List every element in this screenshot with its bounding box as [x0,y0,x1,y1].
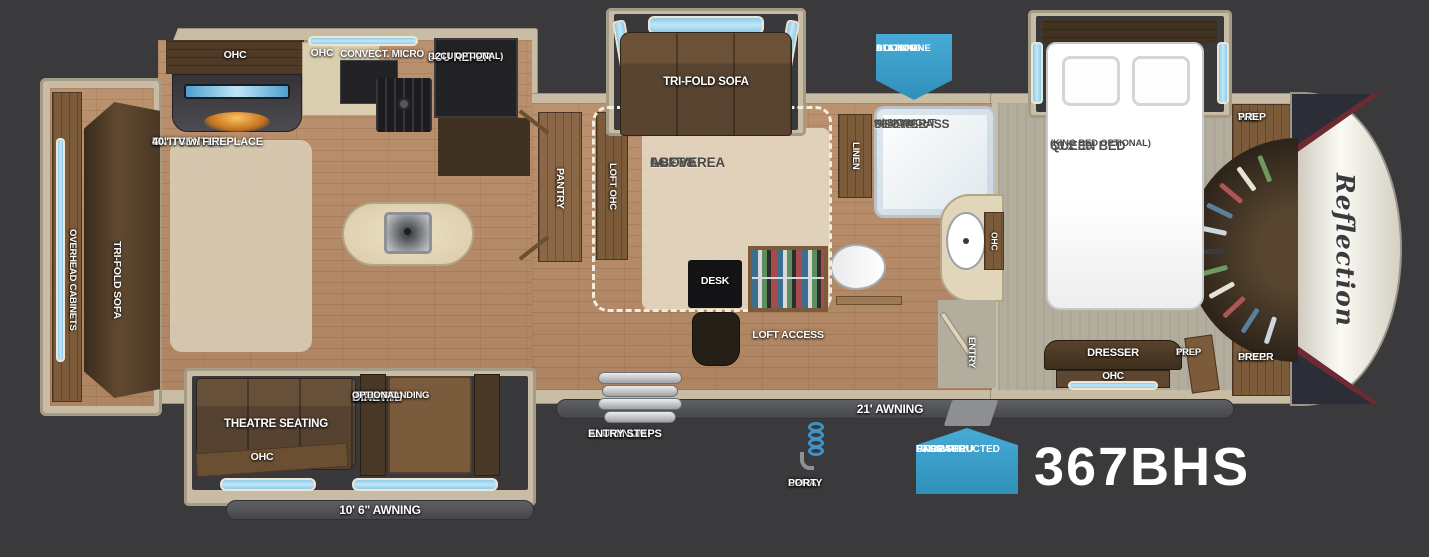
pantry-label: PANTRY [549,130,569,246]
brand-logo: Reflection [1322,158,1368,342]
docking-station-badge: ALL-IN-ONE DOCKING STATION [876,34,952,100]
refrigerator [434,38,518,118]
pass-thru-storage-badge: UNOBSTRUCTED PASS-THRU STORAGE [916,428,1018,494]
model-number: 367BHS [1034,436,1264,498]
theatre-ohc-label: OHC [232,452,292,464]
convect-micro-label: CONVECT. MICRO [330,49,434,60]
entry-step [602,385,678,397]
island-faucet [404,228,411,235]
linen-label: LINEN [846,124,864,188]
towel-shelf [836,296,902,305]
small-awning-label: 10' 6" AWNING [226,504,534,517]
tv-screen [184,84,290,99]
entry-outside-step [944,400,998,426]
wardrobe-closet [748,246,828,312]
fireplace-glow [204,112,270,132]
vanity-drain [963,238,969,244]
bed-window-left [1031,42,1043,104]
dresser-label: DRESSER [1044,347,1182,359]
mid-trifold-sofa-label: TRI-FOLD SOFA [620,76,792,89]
desk-chair [692,312,740,366]
rear-trifold-sofa-label: TRI-FOLD SOFA [106,160,126,400]
spray-port-icon [798,422,834,474]
refrigerator-lower [438,118,530,176]
living-rug [170,140,312,352]
loft-access-label: LOFT ACCESS [740,330,836,342]
spray-hose [800,452,814,470]
dresser-window [1068,381,1158,390]
bed-window-right [1217,42,1229,104]
wardrobe-rod [752,277,824,279]
dinette-bench-right [474,374,500,476]
entry-step [604,411,676,423]
kitchen-ohc-left-label: OHC [166,50,304,62]
kitchen-window [308,36,418,46]
entry-step [598,398,682,410]
bottom-slide-window-left [220,478,316,491]
desk-label: DESK [688,276,742,288]
bed-headboard [1042,20,1218,44]
entry-step [598,372,682,384]
stove-burner [398,98,410,110]
floorplan-367bhs: OVERHEAD CABINETS TRI-FOLD SOFA OHC ENT.… [0,0,1429,557]
overhead-cabinets-label: OVERHEAD CABINETS [63,150,81,410]
bottom-slide-window-right [352,478,498,491]
pillow-left [1062,56,1120,106]
theatre-seating-label: THEATRE SEATING [186,418,366,431]
vanity-ohc-label: OHC [987,218,1001,264]
entry-label: ENTRY [962,322,980,382]
loft-ohc-label: LOFT OHC [602,126,622,246]
pillow-right [1132,56,1190,106]
